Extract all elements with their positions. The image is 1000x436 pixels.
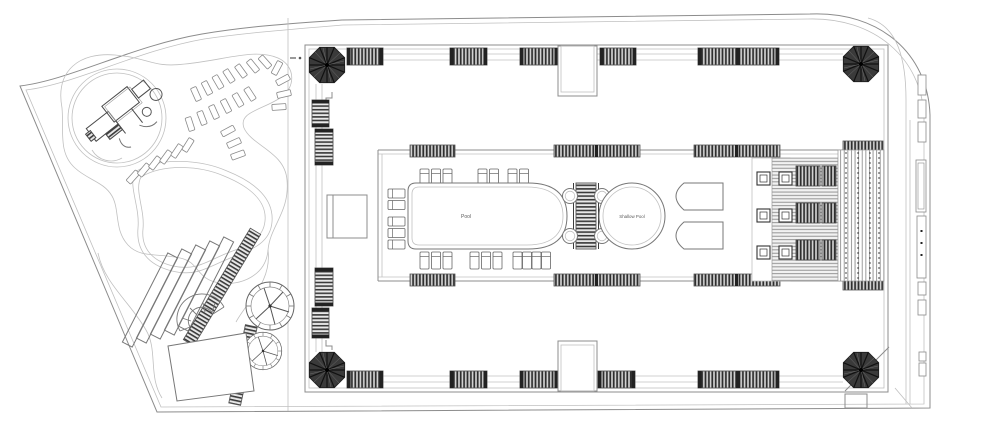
playground-bench [92, 150, 122, 161]
spiral-tower-large [246, 282, 294, 330]
path-branch [98, 253, 162, 398]
winding-path [61, 54, 292, 283]
louver-planter [598, 371, 635, 388]
pool-label: Pool [461, 214, 471, 220]
stair-shaft-top [558, 46, 597, 96]
floor-plan-svg: Pool Shallow Pool [0, 0, 1000, 436]
stair-shaft-bottom [558, 341, 597, 391]
corridor-planters [916, 75, 926, 376]
spot-elevation-marker [290, 57, 301, 60]
pool-deck: Pool Shallow Pool [378, 141, 884, 290]
cabana-platforms [676, 183, 723, 249]
corner-notch [845, 394, 867, 408]
deck-louver-top [410, 141, 883, 157]
shallow-pool-label: Shallow Pool [619, 214, 644, 219]
main-pool: Pool [408, 183, 567, 249]
louver-planter [450, 371, 487, 388]
corner-umbrella [843, 46, 878, 81]
louver-planter [450, 48, 487, 65]
plank-deck [838, 150, 884, 281]
corner-umbrella [309, 352, 344, 387]
corner-umbrella [843, 352, 878, 387]
louver-planter [520, 371, 558, 388]
playground [68, 69, 177, 167]
right-deck-structure [752, 150, 884, 281]
louver-planter [347, 48, 383, 65]
louver-planter [312, 308, 329, 338]
louver-planter [315, 268, 333, 306]
louver-planter [600, 48, 636, 65]
louver-planter [698, 371, 779, 388]
landscape-area [61, 54, 294, 405]
louver-planter [315, 129, 333, 165]
shallow-pool: Shallow Pool [599, 183, 665, 249]
wall-room [327, 195, 367, 238]
site-plan-drawing: Pool Shallow Pool [0, 0, 1000, 436]
louver-planter [312, 100, 329, 127]
louver-planter [347, 371, 383, 388]
splash-pool [168, 333, 254, 401]
corner-umbrella [309, 47, 344, 82]
dark-louver-blocks [796, 166, 836, 260]
louver-planter [520, 48, 558, 65]
louver-planter [698, 48, 779, 65]
